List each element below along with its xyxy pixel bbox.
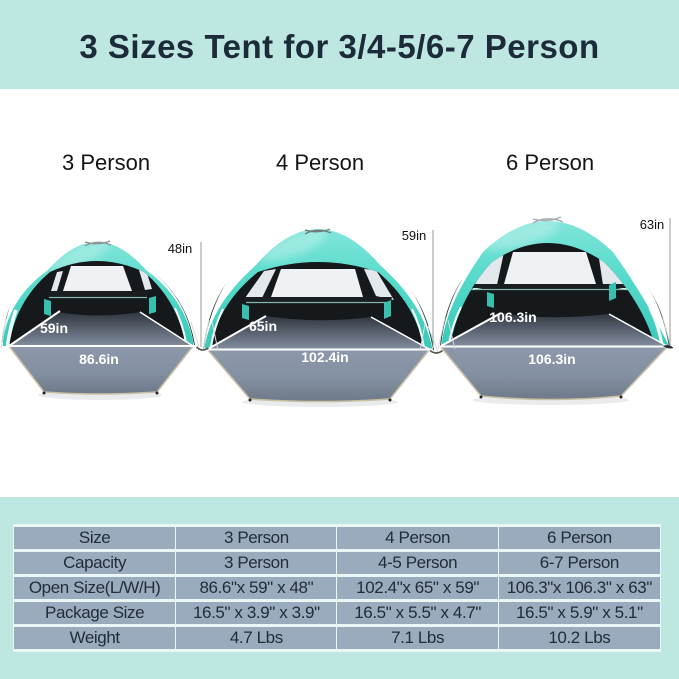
svg-text:48in: 48in [168, 241, 193, 256]
svg-text:102.4in: 102.4in [301, 349, 348, 365]
svg-text:106.3in: 106.3in [489, 309, 536, 325]
svg-text:86.6in: 86.6in [79, 351, 119, 367]
svg-text:106.3in: 106.3in [528, 351, 575, 367]
svg-text:59in: 59in [402, 228, 427, 243]
svg-text:63in: 63in [640, 217, 665, 232]
svg-text:59in: 59in [40, 320, 68, 336]
svg-text:65in: 65in [249, 318, 277, 334]
